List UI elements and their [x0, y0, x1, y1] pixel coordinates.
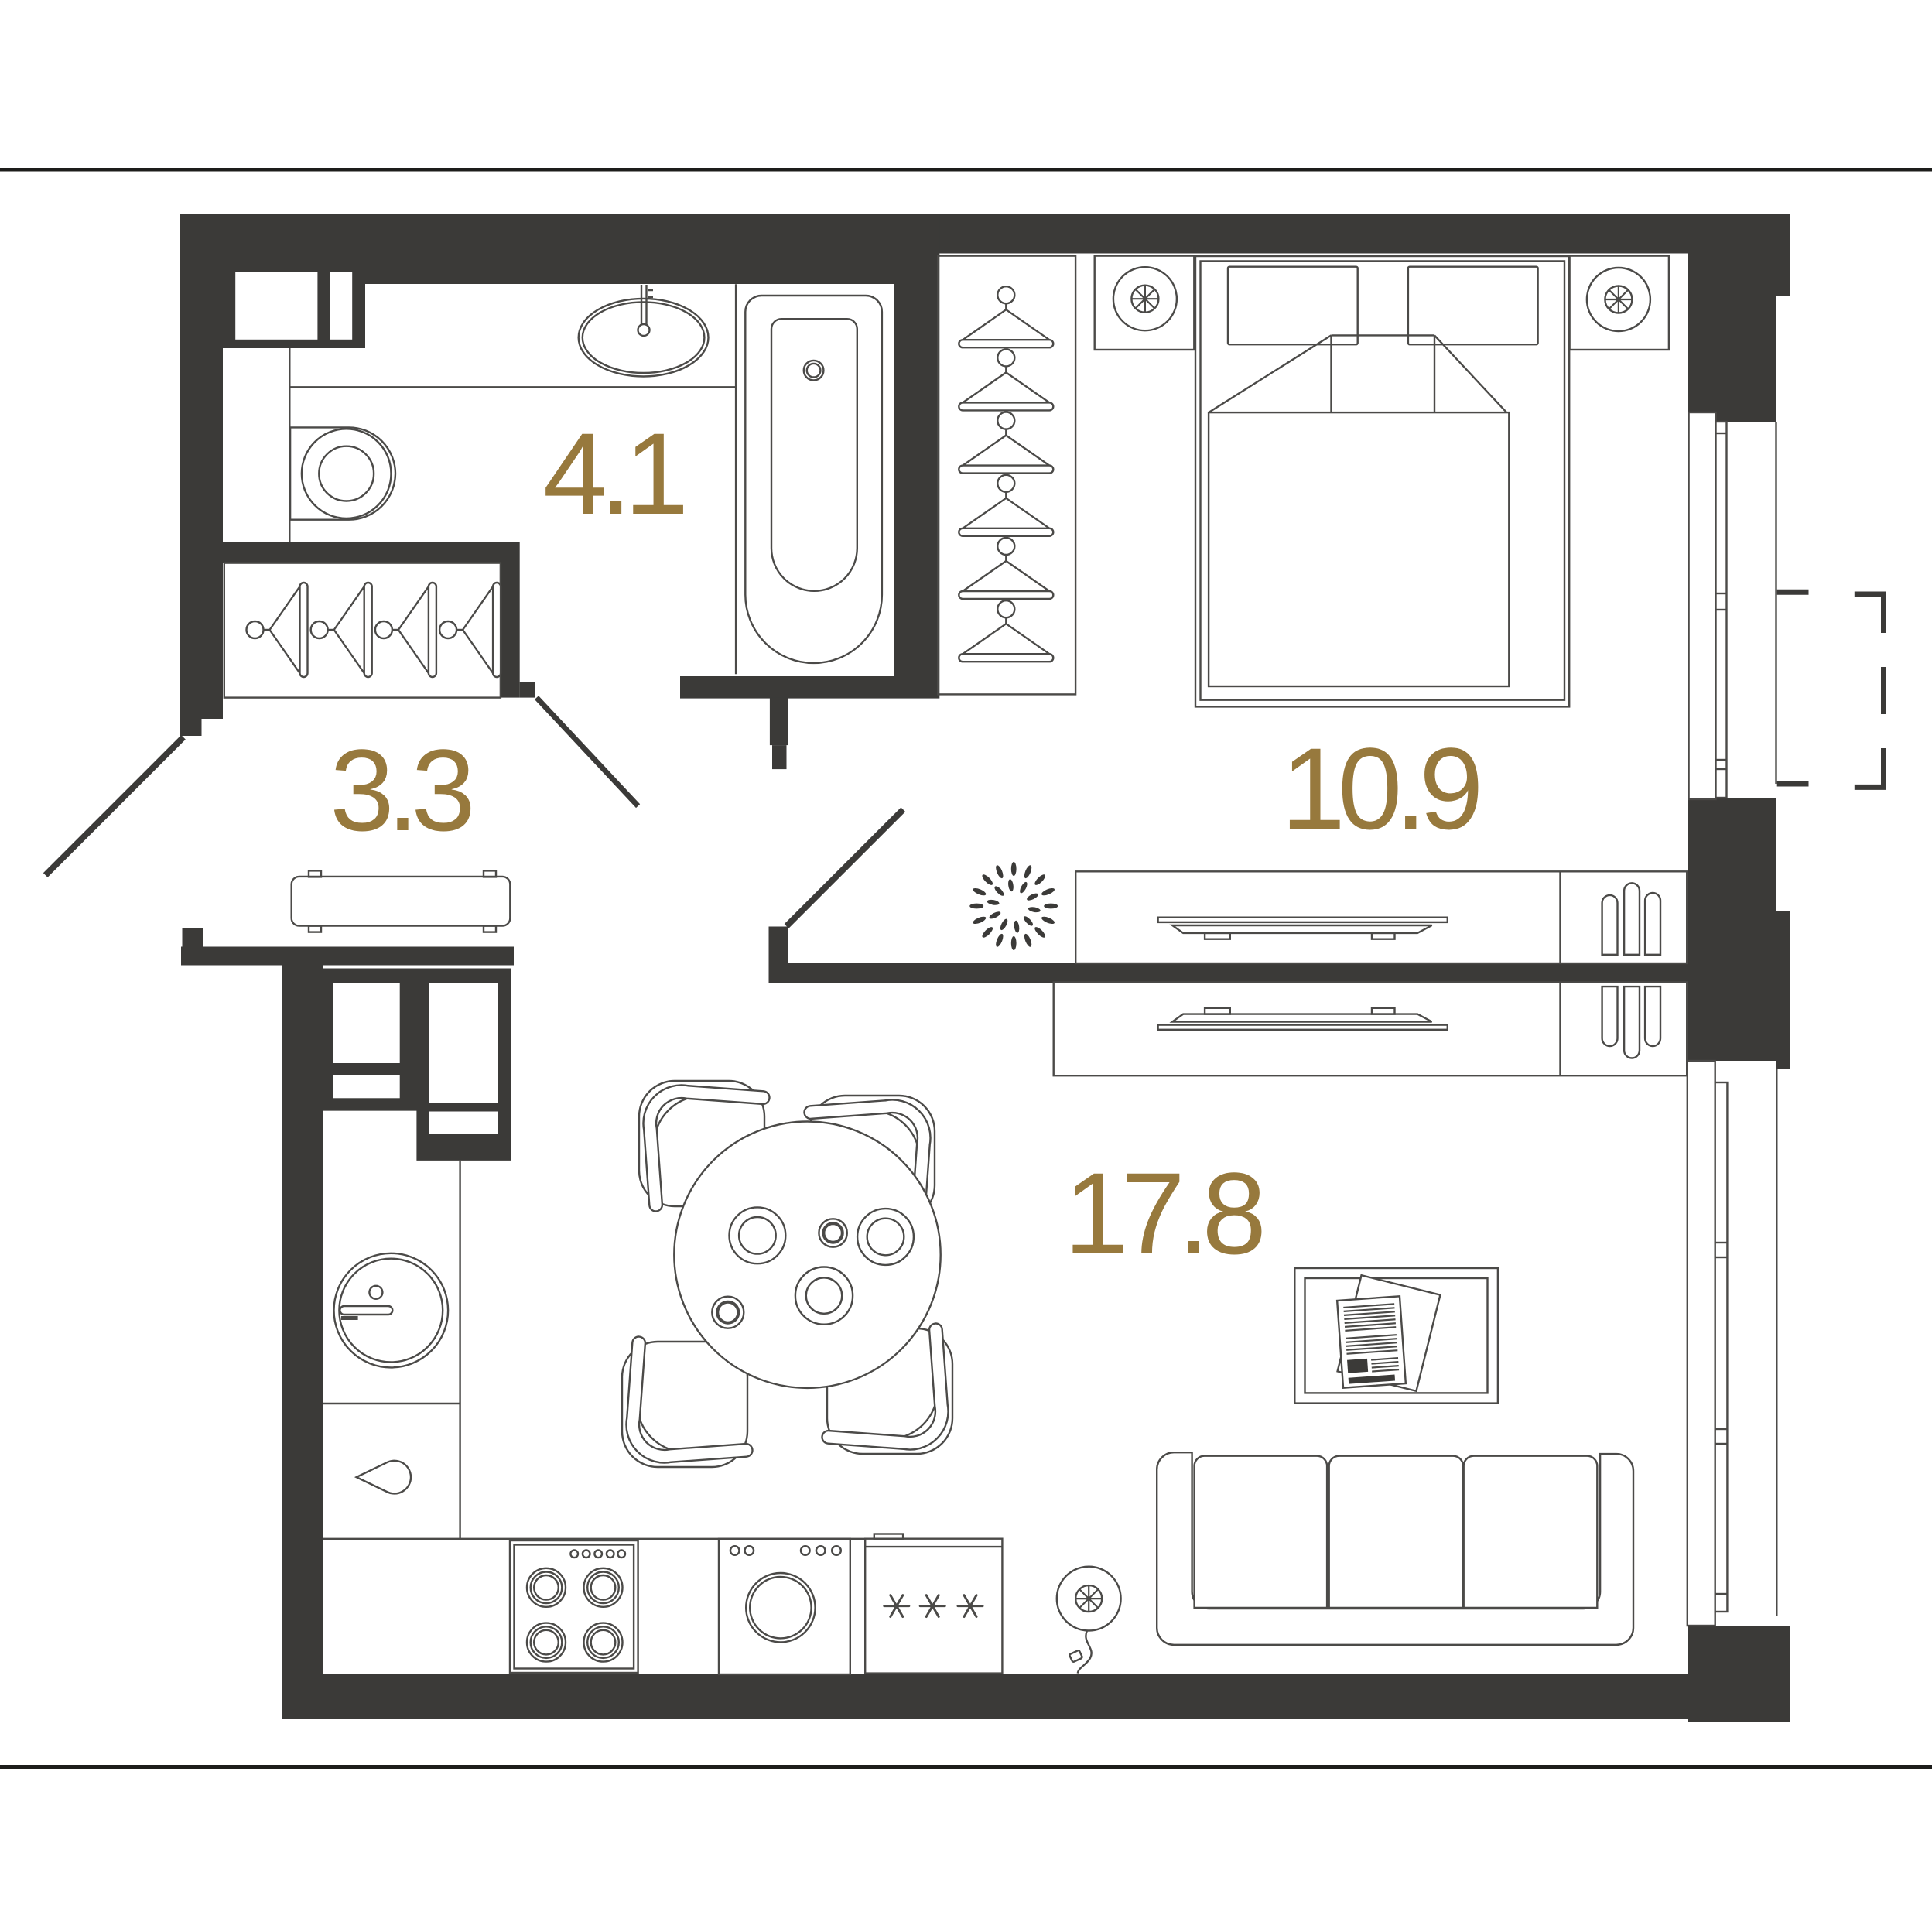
- svg-text:4.1: 4.1: [543, 409, 684, 539]
- svg-text:17.8: 17.8: [1064, 1148, 1262, 1278]
- svg-text:10.9: 10.9: [1281, 723, 1479, 853]
- svg-text:3.3: 3.3: [330, 725, 470, 855]
